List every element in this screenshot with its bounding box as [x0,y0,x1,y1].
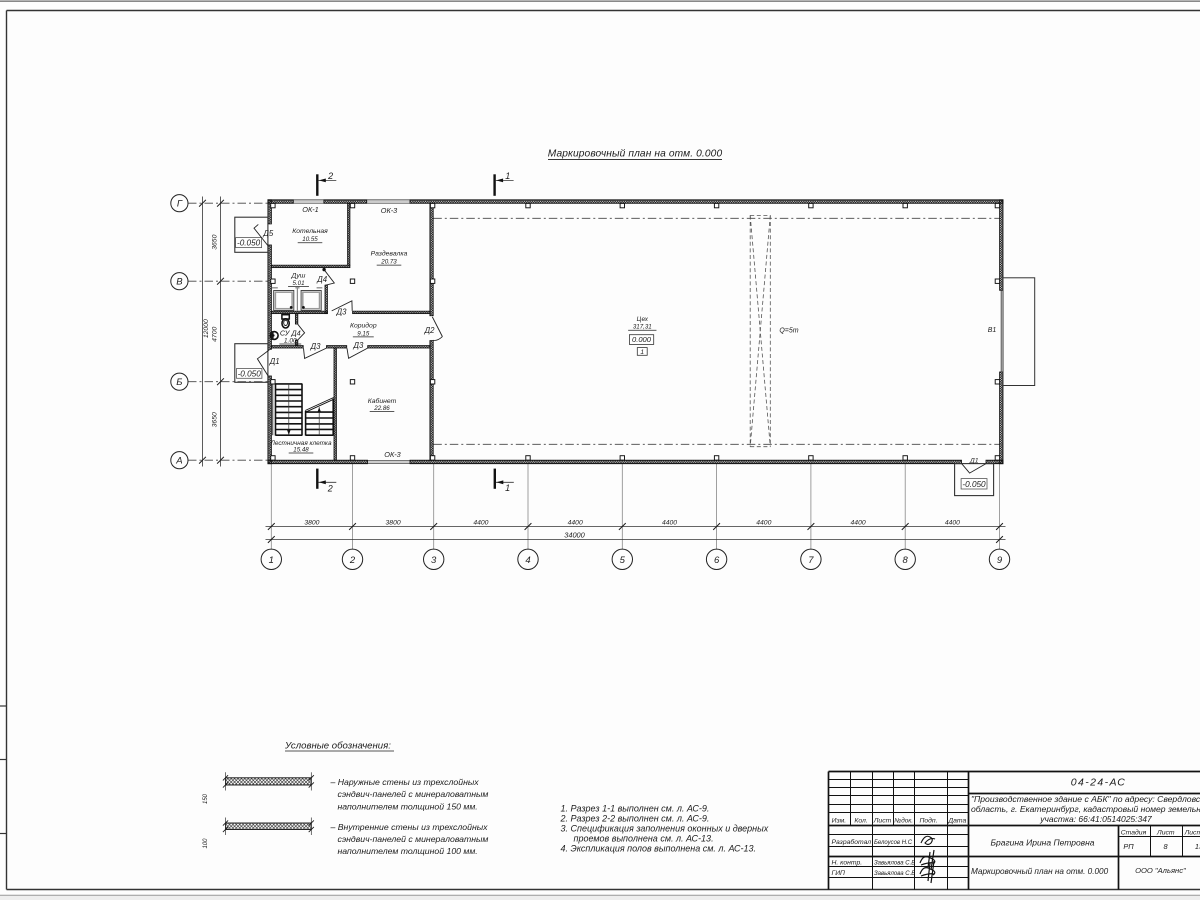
svg-text:1: 1 [505,483,510,493]
svg-text:"Производственное здание с АБК: "Производственное здание с АБК" по адрес… [971,794,1200,804]
svg-text:317,31: 317,31 [633,324,652,331]
svg-text:В1: В1 [988,327,997,334]
svg-text:1. Разрез 1-1 выполнен см. л.: 1. Разрез 1-1 выполнен см. л. АС-9. [561,804,710,814]
svg-text:1: 1 [505,171,510,181]
svg-text:Н. контр.: Н. контр. [832,860,863,867]
svg-text:ОК-1: ОК-1 [302,205,318,214]
svg-text:Маркировочный план на отм. 0.0: Маркировочный план на отм. 0.000 [548,149,723,160]
svg-text:34000: 34000 [564,530,585,539]
svg-text:-0.050: -0.050 [237,239,261,248]
svg-text:12000: 12000 [203,319,210,338]
svg-text:Цех: Цех [637,316,649,323]
svg-text:3. Спецификация заполнения око: 3. Спецификация заполнения оконных и две… [561,824,769,834]
svg-text:20.73: 20.73 [380,259,397,266]
svg-text:Подп.: Подп. [919,816,937,824]
svg-text:Д1: Д1 [969,458,979,465]
svg-text:3800: 3800 [304,519,319,526]
svg-text:Д5: Д5 [262,229,273,238]
svg-text:наполнителем толщиной 150 мм.: наполнителем толщиной 150 мм. [338,801,478,811]
svg-text:Раздевалка: Раздевалка [371,250,408,258]
svg-text:Д3: Д3 [336,307,347,316]
svg-text:0.000: 0.000 [632,335,652,344]
svg-text:5: 5 [620,555,626,566]
svg-text:1: 1 [269,555,274,566]
svg-text:Д4: Д4 [316,275,327,284]
svg-text:6: 6 [714,555,720,566]
svg-text:Стадия: Стадия [1121,828,1147,836]
svg-text:Д3: Д3 [352,341,363,350]
svg-text:1.00: 1.00 [284,337,297,344]
svg-text:Коридор: Коридор [350,322,377,330]
svg-text:Лист: Лист [873,817,892,824]
svg-text:Д3: Д3 [310,342,321,351]
svg-text:-0.050: -0.050 [238,369,262,378]
svg-text:сэндвич-панелей с минераловатн: сэндвич-панелей с минераловатным [338,834,489,844]
svg-text:15.48: 15.48 [293,446,309,453]
svg-text:Условные обозначения:: Условные обозначения: [284,740,391,751]
svg-text:150: 150 [203,793,209,804]
svg-text:№док.: №док. [894,816,913,824]
svg-text:область, г. Екатеринбург, када: область, г. Екатеринбург, кадастровый но… [971,804,1200,814]
svg-text:4: 4 [525,555,530,566]
svg-text:4400: 4400 [568,519,583,526]
svg-text:ОК-3: ОК-3 [384,450,400,459]
svg-text:1: 1 [640,349,644,356]
svg-text:ООО "Альянс": ООО "Альянс" [1135,866,1186,875]
svg-text:4400: 4400 [945,519,960,526]
svg-text:Белоусов Н.С: Белоусов Н.С [874,840,913,846]
svg-text:– Наружные стены из трехслойн: – Наружные стены из трехслойных [330,777,480,787]
svg-text:Завьялова С.В: Завьялова С.В [874,871,915,877]
svg-text:Завьялова С.В: Завьялова С.В [874,861,915,867]
svg-text:2: 2 [327,171,333,181]
svg-text:Кол.: Кол. [854,817,867,824]
svg-text:Листов: Листов [1184,829,1200,836]
svg-text:04-24-АС: 04-24-АС [1071,777,1127,789]
svg-text:участка: 66:41:0514025:347: участка: 66:41:0514025:347 [1039,814,1152,824]
svg-text:Маркировочный план на отм. 0.0: Маркировочный план на отм. 0.000 [971,867,1109,876]
svg-text:наполнителем толщиной 100 мм.: наполнителем толщиной 100 мм. [338,846,478,856]
svg-text:7: 7 [808,555,814,566]
svg-text:3: 3 [431,555,437,566]
svg-text:2: 2 [349,555,356,566]
svg-text:Д1: Д1 [269,357,280,366]
svg-text:100: 100 [203,838,209,849]
svg-text:22.86: 22.86 [373,405,390,412]
svg-text:ГИП: ГИП [832,870,846,877]
svg-text:Б: Б [176,377,182,388]
svg-text:13: 13 [1195,842,1200,851]
svg-text:– Внутренние стены из трехсло: – Внутренние стены из трехслойных [330,822,489,832]
svg-text:СУ Д4: СУ Д4 [280,329,301,338]
svg-text:Q=5т: Q=5т [779,327,798,334]
svg-text:ОК-3: ОК-3 [381,206,397,215]
svg-text:9.15: 9.15 [357,330,370,337]
svg-text:9: 9 [997,555,1003,566]
svg-text:Г: Г [177,199,183,210]
svg-text:Душ: Душ [291,273,306,280]
svg-text:2. Разрез 2-2 выполнен см. л.: 2. Разрез 2-2 выполнен см. л. АС-9. [560,814,710,824]
svg-text:3800: 3800 [386,519,401,526]
svg-text:Котельная: Котельная [292,228,328,235]
svg-text:Разработал: Разработал [832,838,872,846]
svg-text:-0.050: -0.050 [962,480,986,489]
svg-text:4400: 4400 [756,519,771,526]
svg-text:Изм.: Изм. [832,817,847,824]
svg-text:4. Экспликация полов выполнена: 4. Экспликация полов выполнена см. л. АС… [561,843,757,853]
svg-text:Д2: Д2 [424,326,435,335]
svg-text:4400: 4400 [473,519,488,526]
svg-text:Дата: Дата [947,817,966,824]
svg-text:В: В [176,277,183,288]
svg-text:сэндвич-панелей с минераловатн: сэндвич-панелей с минераловатным [338,789,489,799]
svg-text:4400: 4400 [851,519,866,526]
svg-text:3650: 3650 [212,234,219,249]
svg-text:10.55: 10.55 [302,236,318,243]
svg-text:3650: 3650 [212,412,219,427]
svg-text:4400: 4400 [662,519,677,526]
svg-text:8: 8 [903,555,909,566]
svg-text:4700: 4700 [212,327,219,342]
svg-text:проемов выполнена см. л. АС-13: проемов выполнена см. л. АС-13. [574,833,714,843]
svg-text:2: 2 [327,484,333,494]
svg-text:А: А [175,456,182,467]
svg-text:5.01: 5.01 [292,280,304,287]
svg-text:Лист: Лист [1156,829,1175,836]
svg-text:РП: РП [1123,842,1134,851]
svg-text:Брагина Ирина Петровна: Брагина Ирина Петровна [990,838,1094,848]
